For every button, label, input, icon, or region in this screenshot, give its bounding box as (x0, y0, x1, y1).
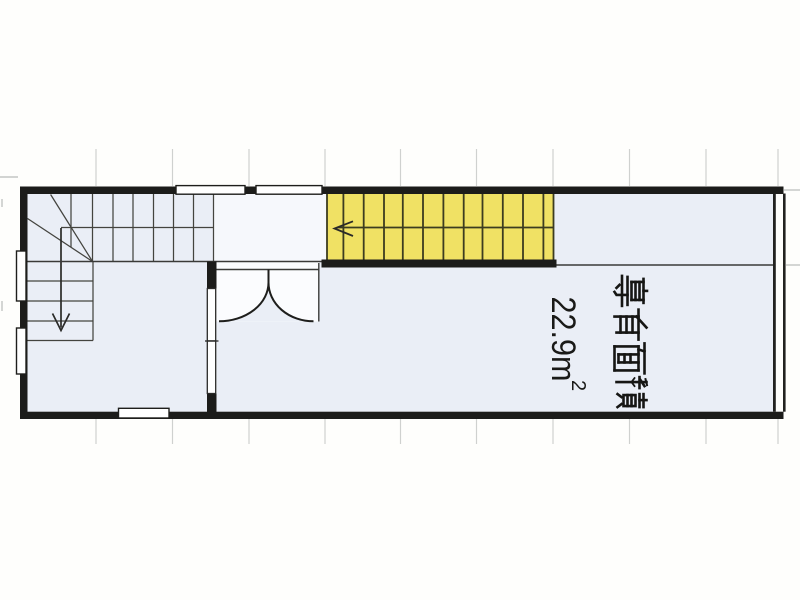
svg-text:2: 2 (567, 380, 589, 391)
svg-text:22.9m: 22.9m (544, 297, 582, 382)
